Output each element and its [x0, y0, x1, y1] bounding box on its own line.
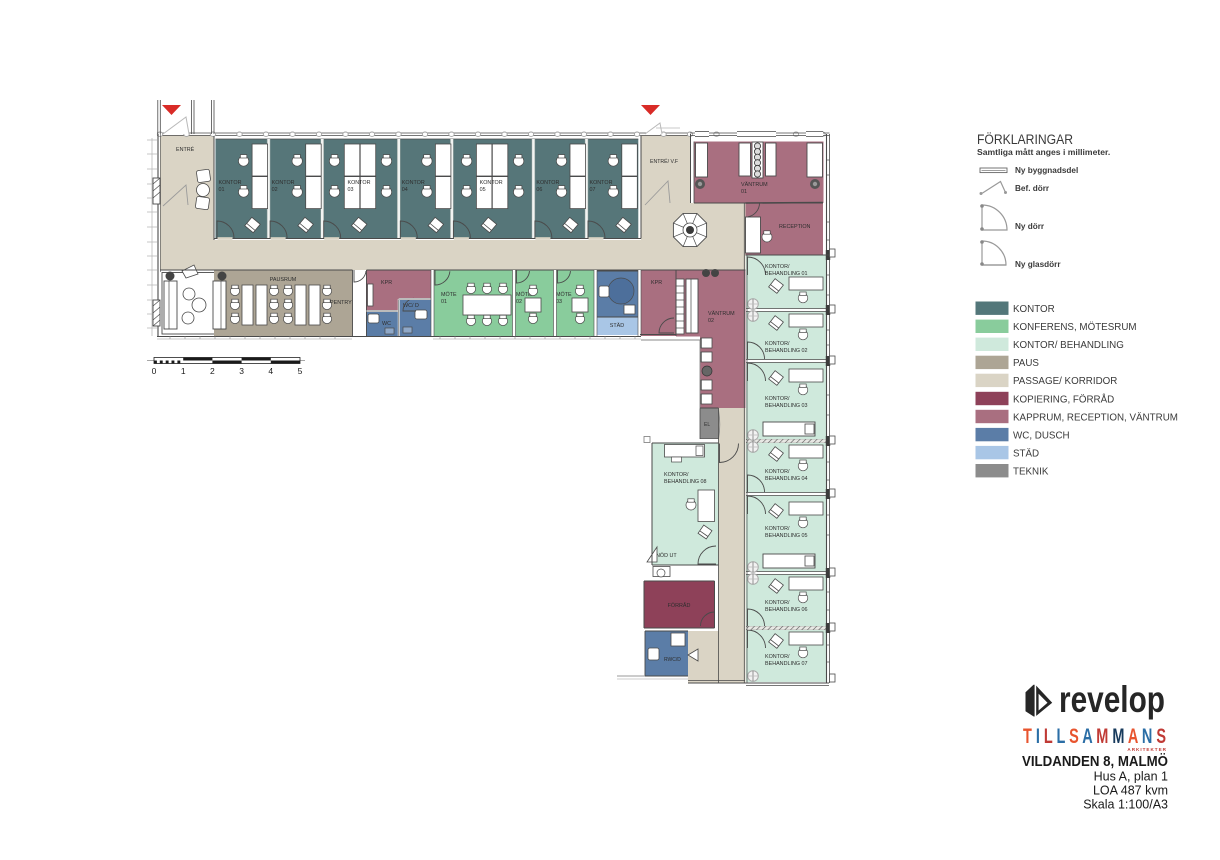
svg-text:01: 01: [219, 187, 225, 193]
svg-text:BEHANDLING 03: BEHANDLING 03: [765, 403, 808, 409]
svg-text:02: 02: [708, 318, 714, 324]
svg-text:Samtliga mått anges i millimet: Samtliga mått anges i millimeter.: [977, 147, 1110, 157]
svg-text:KPR: KPR: [381, 280, 392, 286]
svg-text:PAUSRUM: PAUSRUM: [270, 277, 297, 283]
svg-text:Bef. dörr: Bef. dörr: [1015, 184, 1050, 193]
svg-text:0: 0: [152, 366, 157, 376]
svg-text:WC, DUSCH: WC, DUSCH: [1013, 430, 1070, 441]
svg-text:01: 01: [441, 299, 447, 305]
svg-text:02: 02: [516, 299, 522, 305]
svg-text:06: 06: [536, 187, 542, 193]
svg-text:Ny byggnadsdel: Ny byggnadsdel: [1015, 166, 1078, 175]
svg-text:KONTOR/: KONTOR/: [765, 526, 790, 532]
svg-text:T I L L S A M M A N S: T I L L S A M M A N S: [1023, 724, 1166, 748]
svg-text:04: 04: [402, 187, 408, 193]
svg-text:VÄNTRUM: VÄNTRUM: [708, 310, 735, 317]
svg-text:4: 4: [268, 366, 273, 376]
svg-text:MÖTE: MÖTE: [556, 291, 572, 298]
svg-text:FÖRRÅD: FÖRRÅD: [668, 602, 691, 609]
svg-text:TEKNIK: TEKNIK: [1013, 467, 1049, 478]
svg-text:KONTOR: KONTOR: [272, 180, 295, 186]
svg-text:PAUS: PAUS: [1013, 358, 1039, 369]
svg-text:revelop: revelop: [1059, 679, 1165, 720]
svg-text:FÖRKLARINGAR: FÖRKLARINGAR: [977, 132, 1073, 147]
svg-text:KONTOR: KONTOR: [590, 180, 613, 186]
svg-text:BEHANDLING 02: BEHANDLING 02: [765, 348, 808, 354]
svg-text:KONTOR: KONTOR: [348, 180, 371, 186]
svg-text:MÖTE: MÖTE: [441, 291, 457, 298]
svg-text:STÄD: STÄD: [610, 322, 624, 329]
svg-text:KONTOR/: KONTOR/: [765, 264, 790, 270]
svg-text:03: 03: [348, 187, 354, 193]
svg-text:KPR: KPR: [651, 280, 662, 286]
svg-text:BEHANDLING 08: BEHANDLING 08: [664, 479, 707, 485]
svg-text:ENTRÉ/ V.F: ENTRÉ/ V.F: [650, 158, 678, 165]
svg-text:KONTOR: KONTOR: [219, 180, 242, 186]
svg-text:Hus A, plan 1: Hus A, plan 1: [1094, 770, 1168, 784]
svg-text:NÖD UT: NÖD UT: [656, 552, 677, 559]
svg-text:KONTOR: KONTOR: [1013, 304, 1055, 315]
svg-text:KONTOR/ BEHANDLING: KONTOR/ BEHANDLING: [1013, 340, 1124, 351]
svg-text:5: 5: [298, 366, 303, 376]
svg-text:Skala 1:100/A3: Skala 1:100/A3: [1083, 798, 1168, 812]
svg-text:KONFERENS, MÖTESRUM: KONFERENS, MÖTESRUM: [1013, 322, 1137, 333]
svg-text:VÄNTRUM: VÄNTRUM: [741, 181, 768, 188]
svg-text:BEHANDLING 01: BEHANDLING 01: [765, 271, 808, 277]
svg-text:01: 01: [741, 189, 747, 195]
svg-text:KONTOR/: KONTOR/: [765, 469, 790, 475]
svg-text:WC: WC: [382, 321, 391, 327]
svg-text:07: 07: [590, 187, 596, 193]
svg-text:KONTOR/: KONTOR/: [664, 472, 689, 478]
svg-text:PASSAGE/ KORRIDOR: PASSAGE/ KORRIDOR: [1013, 376, 1117, 387]
svg-text:02: 02: [272, 187, 278, 193]
svg-text:BEHANDLING 04: BEHANDLING 04: [765, 476, 808, 482]
svg-text:Ny dörr: Ny dörr: [1015, 222, 1045, 231]
svg-text:BEHANDLING 05: BEHANDLING 05: [765, 533, 808, 539]
svg-text:KONTOR: KONTOR: [402, 180, 425, 186]
svg-text:KONTOR/: KONTOR/: [765, 600, 790, 606]
svg-text:STÄD: STÄD: [1013, 448, 1039, 459]
svg-text:05: 05: [480, 187, 486, 193]
svg-text:KONTOR/: KONTOR/: [765, 341, 790, 347]
svg-text:KOPIERING, FÖRRÅD: KOPIERING, FÖRRÅD: [1013, 394, 1114, 405]
svg-text:ARKITEKTER: ARKITEKTER: [1127, 747, 1167, 752]
svg-text:RECEPTION: RECEPTION: [779, 224, 811, 230]
svg-text:BEHANDLING 07: BEHANDLING 07: [765, 661, 808, 667]
svg-text:KAPPRUM, RECEPTION, VÄNTRUM: KAPPRUM, RECEPTION, VÄNTRUM: [1013, 412, 1178, 423]
svg-text:Ny glasdörr: Ny glasdörr: [1015, 260, 1061, 269]
svg-text:KONTOR/: KONTOR/: [765, 654, 790, 660]
svg-text:KONTOR/: KONTOR/: [765, 396, 790, 402]
svg-text:KONTOR: KONTOR: [536, 180, 559, 186]
svg-text:VILDANDEN 8, MALMÖ: VILDANDEN 8, MALMÖ: [1022, 753, 1168, 770]
svg-text:03: 03: [556, 299, 562, 305]
svg-text:1: 1: [181, 366, 186, 376]
svg-text:PENTRY: PENTRY: [330, 300, 352, 306]
svg-text:2: 2: [210, 366, 215, 376]
svg-text:LOA 487 kvm: LOA 487 kvm: [1093, 784, 1168, 798]
svg-text:KONTOR: KONTOR: [480, 180, 503, 186]
svg-text:EL: EL: [704, 422, 710, 428]
svg-text:BEHANDLING 06: BEHANDLING 06: [765, 607, 808, 613]
svg-text:ENTRÉ: ENTRÉ: [176, 146, 195, 153]
svg-text:RWC/D: RWC/D: [664, 657, 681, 663]
svg-text:3: 3: [239, 366, 244, 376]
